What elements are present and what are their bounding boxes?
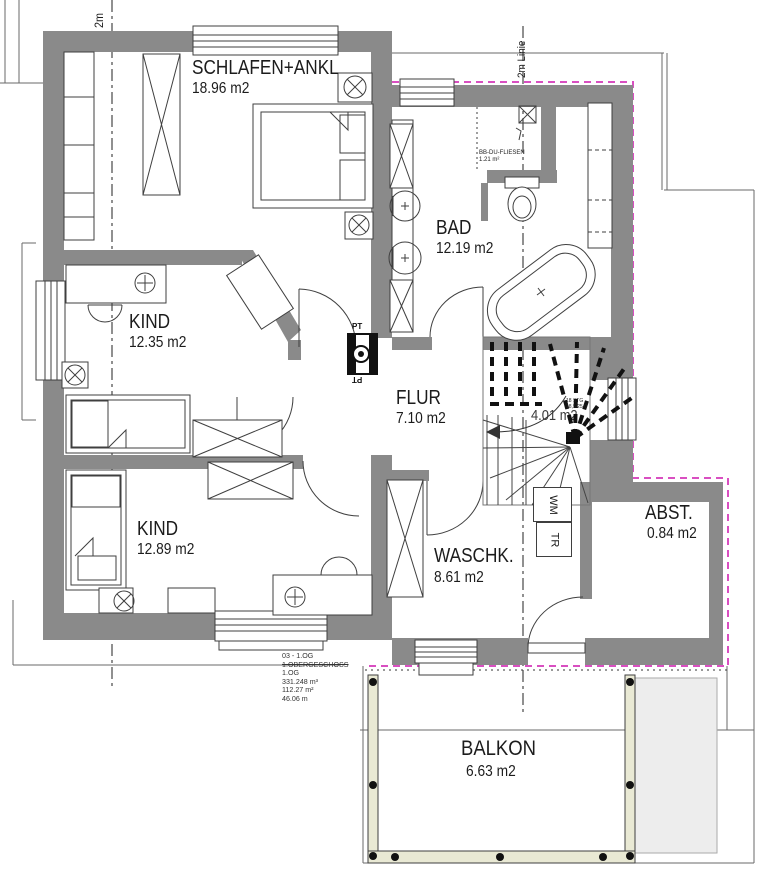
nightstand-lamp-bottom [345,212,373,239]
bath-cabinet [588,103,612,248]
bed-kind1 [66,395,190,453]
closet-x [143,54,180,195]
balcony [368,675,717,863]
room-area-balkon: 6.63 m2 [466,763,516,781]
room-area-kind2: 12.89 m2 [137,541,194,559]
outlet-box-1 [62,362,88,388]
washing-machine: WM [533,487,572,522]
room-area-abst: 0.84 m2 [647,525,697,543]
room-label-balkon: BALKON [461,737,536,761]
room-label-kind1: KIND [129,311,170,334]
wardrobe [64,52,94,240]
plan-drawing [0,0,770,876]
chair-2 [321,557,357,575]
desk-1 [66,265,166,303]
chair-1 [88,305,122,322]
room-label-bad: BAD [436,217,471,240]
room-area-bad: 12.19 m2 [436,240,493,258]
floor-plan: 4.01 m2 SCHLAFEN+ANKL 18.96 m2 BAD 12.19… [0,0,770,876]
room-area-kind1: 12.35 m2 [129,334,186,352]
door-waschk [427,481,483,535]
roof-area [635,678,717,853]
room-area-waschk: 8.61 m2 [434,569,484,587]
door-bad [430,287,483,337]
pt-label-top: PT [352,322,362,331]
shaft-x-top [390,124,413,188]
room-label-kind2: KIND [137,518,178,541]
bathtub [477,234,606,351]
window-bad-top [400,79,454,106]
shaft-waschk [387,480,423,597]
room-label-waschk: WASCHK. [434,545,514,568]
shower-name: BB-DU-FLIESEN [479,150,525,157]
furniture-kind2 [66,462,372,615]
shower-area: 1.21 m² [479,157,525,164]
window-top [193,26,338,55]
door-kind2 [303,461,359,516]
window-left [36,281,65,380]
bed-kind2 [66,470,126,590]
closet-x-kind2 [208,462,293,499]
pt-label-bottom: PT [352,375,362,384]
room-label-flur: FLUR [396,387,441,410]
window-bottom-left [215,611,327,650]
info-line-6: 46.06 m [282,695,349,704]
room-area-schlafen: 18.96 m2 [192,80,249,98]
furniture-kind1 [62,255,293,457]
dresser [168,588,215,613]
fixtures-bad [389,103,612,351]
pt-shaft [348,334,377,374]
window-waschk [415,640,477,675]
double-bed [253,104,373,208]
stair-note: 18 STG 18,5/25,0 [566,398,587,410]
dryer: TR [536,522,572,557]
section-line-label-right: 2m Linie [516,41,528,78]
toilet [505,177,539,221]
room-label-abst: ABST. [645,502,693,525]
nightstand-lamp-top [338,73,372,102]
shaft-x-bottom [390,280,413,332]
floor-info-block: 03 - 1.OG 1.OBERGESCHOSS 1.OG 331.248 m³… [282,652,349,703]
closet-x-kind1 [193,420,282,457]
outlet-box-2 [99,588,134,613]
shower-label: BB-DU-FLIESEN 1.21 m² [479,150,525,164]
desk-2 [273,575,372,615]
balcony-door [528,638,585,665]
room-area-flur: 7.10 m2 [396,410,446,428]
section-line-label-left: 2m [92,13,106,28]
room-label-schlafen: SCHLAFEN+ANKL [192,57,339,80]
